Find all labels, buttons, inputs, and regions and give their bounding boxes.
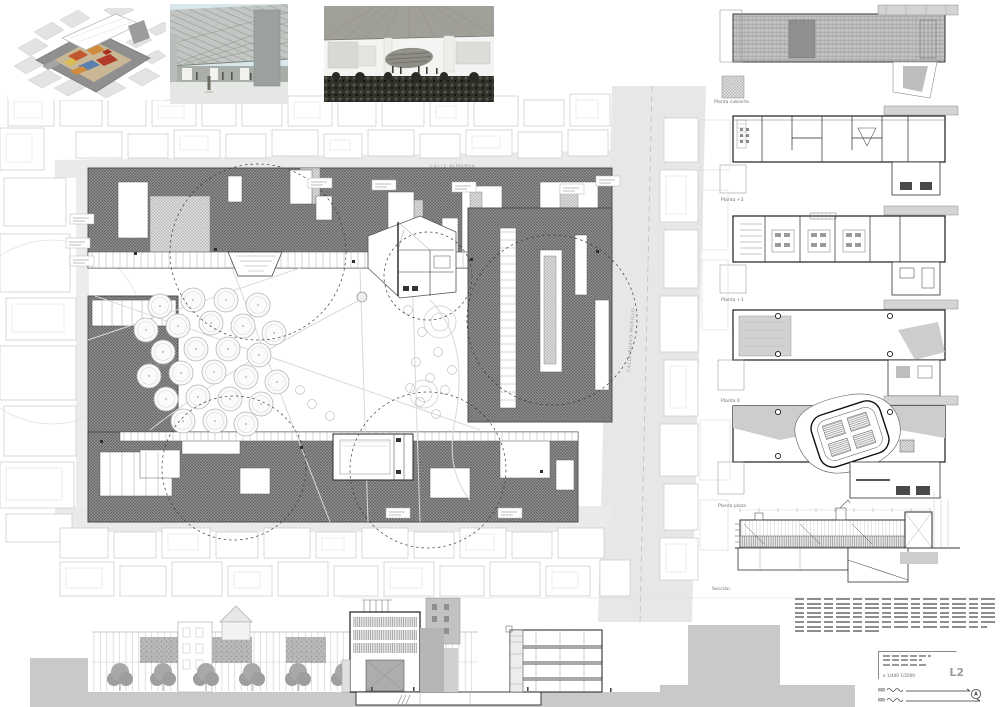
- project-stamp: e 1/400 1/2000 L2: [878, 651, 968, 681]
- competition-board-sheet: CALLE ALMANSA CALLE BRAVO MURILLO CALLE …: [0, 0, 1000, 707]
- site-plan: [0, 164, 637, 548]
- canopy-render: [170, 4, 288, 104]
- plan-plaza: [718, 381, 958, 498]
- interior-render: [324, 6, 494, 102]
- plan-plus1: [720, 206, 958, 295]
- plan-label-plaza: Planta plaza: [718, 503, 746, 509]
- context-outlines-right: [700, 120, 730, 550]
- compass-icon: [968, 686, 984, 702]
- plaza-building: [333, 434, 413, 480]
- section-label: Sección: [712, 585, 730, 592]
- plan-label-plus1: Planta +1: [721, 297, 744, 303]
- building-section-right: [506, 626, 602, 692]
- plan-plus2: [720, 106, 958, 195]
- portal-west: [228, 252, 282, 276]
- scale-text: e 1/400 1/2000: [883, 673, 915, 678]
- section-drawing: [735, 492, 960, 582]
- plan-label-plus2: Planta +2: [721, 197, 744, 203]
- render-pillar: [254, 10, 280, 86]
- render-foliage: [324, 76, 494, 102]
- plan-label-zero: Planta 0: [721, 398, 740, 404]
- aerial-render: [8, 8, 166, 100]
- sheet-code: L2: [949, 668, 964, 678]
- plan-roof: [720, 5, 958, 98]
- description-text-block: [795, 598, 995, 635]
- plan-zero: [718, 300, 958, 396]
- plan-label-roof: Planta cubierta: [714, 99, 749, 105]
- floor-plans-column: Planta cubierta Planta +2: [714, 5, 958, 509]
